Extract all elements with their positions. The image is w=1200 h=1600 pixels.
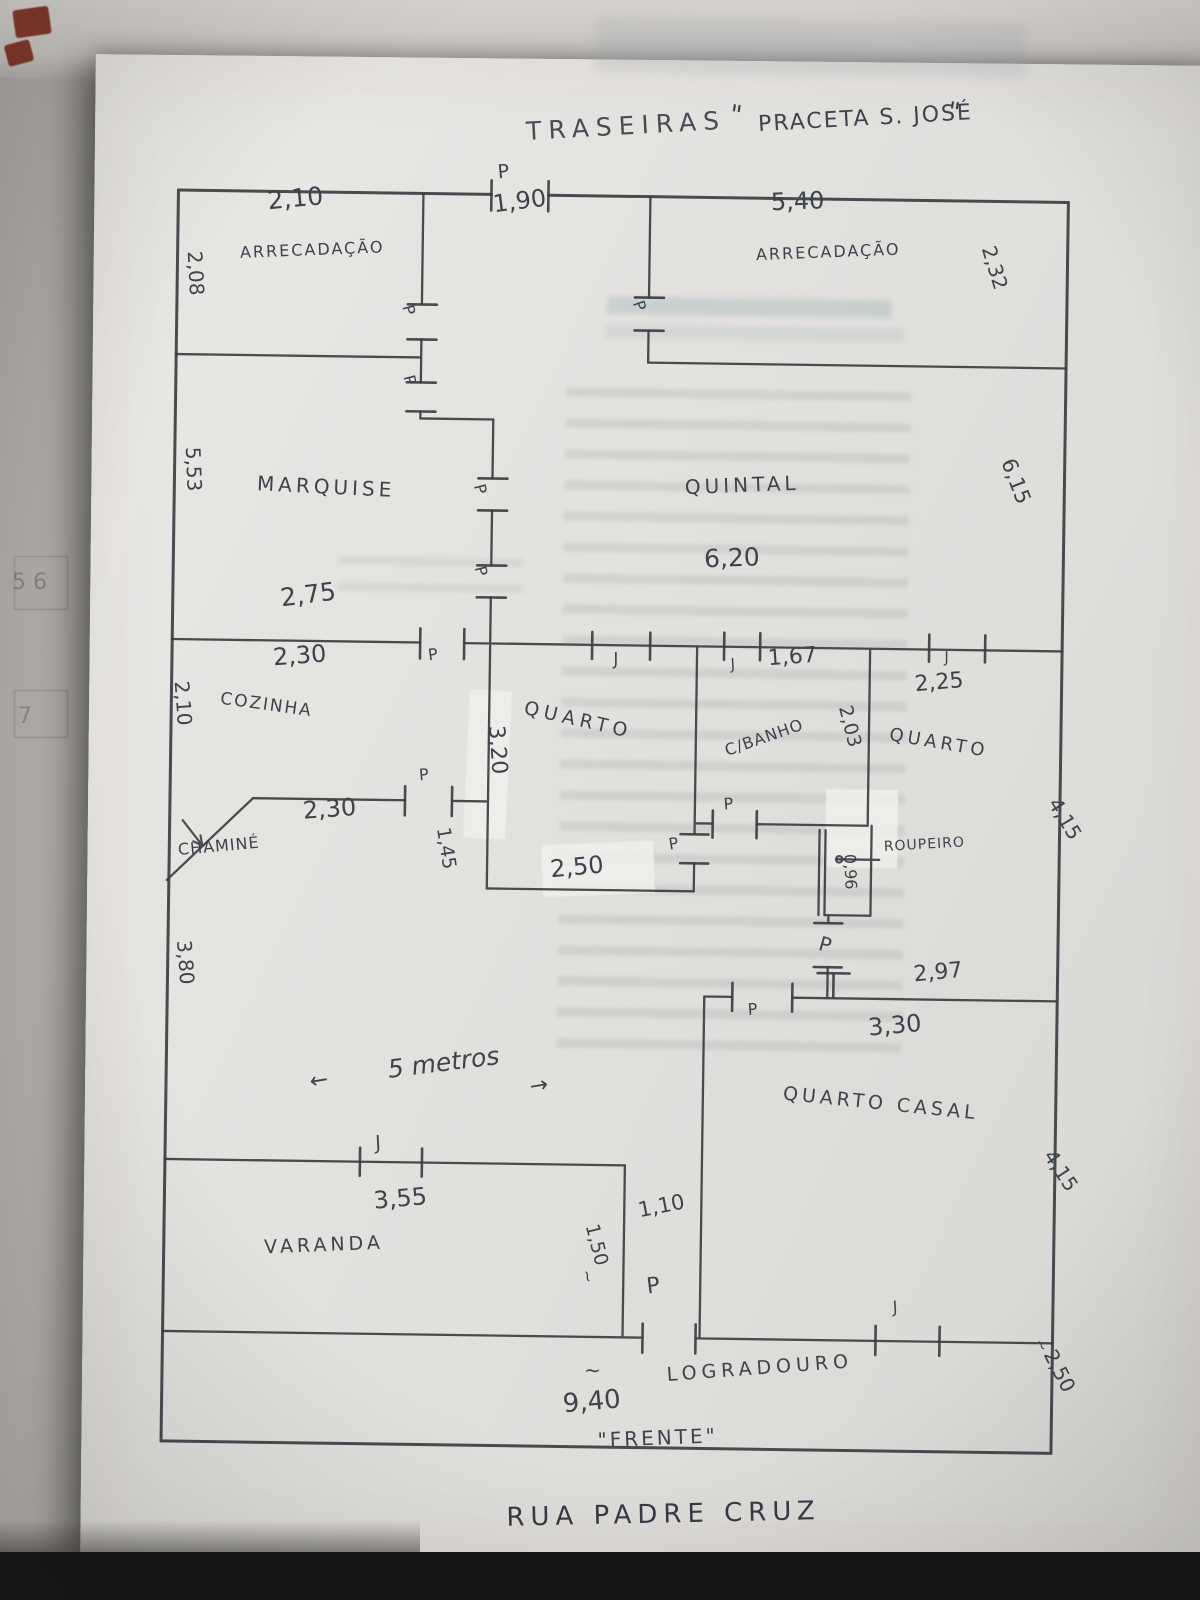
annotation-praceta: PRACETA S. JOSÉ xyxy=(758,102,974,136)
window-label-quarto-center: J xyxy=(612,651,620,669)
dim-corridor-width: 1,10 xyxy=(636,1191,686,1221)
door-label-casal: P xyxy=(747,1001,758,1018)
window-label-varanda: J xyxy=(373,1133,383,1153)
room-marquise: MARQUISE xyxy=(257,473,396,500)
room-chamine: CHAMINÉ xyxy=(177,835,260,858)
room-banho: C/BANHO xyxy=(723,717,806,759)
room-quarto-right: QUARTO xyxy=(888,726,990,761)
dim-quintal-depth: 6,15 xyxy=(997,456,1033,507)
dim-marquise-depth: 5,53 xyxy=(183,446,205,491)
dim-front-width: 9,40 xyxy=(562,1386,622,1417)
door-label-cozinha: P xyxy=(418,767,429,784)
dim-cozinha-depth: 2,10 xyxy=(172,680,195,726)
door-label-corridor-exit: P xyxy=(645,1275,661,1298)
dim-quarto-center-width: 2,50 xyxy=(549,852,604,881)
dim-casal-width: 3,30 xyxy=(867,1011,922,1040)
street-rua-padre-cruz: RUA PADRE CRUZ xyxy=(506,1498,821,1531)
annotation-traseiras: TRASEIRAS xyxy=(526,108,727,144)
door-label-top-entrance: P xyxy=(497,162,510,182)
dim-logradouro-depth: 2,50 xyxy=(1041,1346,1079,1395)
dim-hall-width: 1,45 xyxy=(433,826,459,871)
room-quarto-casal: QUARTO CASAL xyxy=(782,1085,979,1124)
dim-quarto-right-width: 2,25 xyxy=(914,670,965,696)
dim-quarto-right-depth: 4,15 xyxy=(1045,794,1085,842)
room-quarto-center: QUARTO xyxy=(522,699,634,742)
dim-front-approx: ~ xyxy=(584,1360,601,1380)
annotation-5-metros: 5 metros xyxy=(386,1043,500,1082)
room-varanda: VARANDA xyxy=(264,1234,384,1258)
dim-arrecadacao-right-width: 5,40 xyxy=(771,188,825,214)
dark-table-edge xyxy=(0,1552,1200,1600)
window-label-quarto-right: J xyxy=(943,650,950,666)
photo-of-floor-plan: 5 67 xyxy=(0,0,1200,1600)
door-label-corridor-upper: P xyxy=(471,482,489,495)
dim-marquise-width: 2,75 xyxy=(279,579,337,611)
annotation-praceta-quote-open: " xyxy=(728,102,744,130)
room-cozinha: COZINHA xyxy=(219,691,313,720)
dim-top-entrance: 1,90 xyxy=(491,186,547,217)
floor-plan: TRASEIRAS"PRACETA S. JOSÉ"P1,902,10ARREC… xyxy=(0,0,1200,1600)
dim-casal-north: 2,97 xyxy=(913,960,964,986)
dim-arrecadacao-left-width: 2,10 xyxy=(267,183,325,213)
dim-casal-depth: 4,15 xyxy=(1040,1146,1081,1194)
annotation-frente: "FRENTE" xyxy=(597,1425,718,1450)
door-label-corridor-lower: P xyxy=(472,564,490,577)
dim-sala-depth: 3,80 xyxy=(174,939,197,985)
window-label-banho: J xyxy=(729,657,737,673)
dim-quarto-center-depth: 3,20 xyxy=(484,725,510,775)
dim-quintal-width: 6,20 xyxy=(704,544,761,571)
dim-varanda-width: 3,55 xyxy=(373,1184,428,1213)
annotation-arrow-left: ← xyxy=(308,1069,330,1094)
room-quintal: QUINTAL xyxy=(685,473,800,497)
door-label-quintal-west: P xyxy=(630,299,648,313)
dim-roupeiro: 0,96 xyxy=(841,854,858,890)
room-arrecadacao-right: ARRECADAÇÃO xyxy=(756,242,901,264)
door-label-quarto-center: P xyxy=(667,835,679,852)
dim-banho-width: 1,67 xyxy=(767,645,817,671)
door-label-main-wall: P xyxy=(427,646,439,663)
dim-banho-depth: 2,03 xyxy=(835,704,864,750)
labels-layer: TRASEIRAS"PRACETA S. JOSÉ"P1,902,10ARREC… xyxy=(0,0,1200,1600)
room-roupeiro: ROUPEIRO xyxy=(883,835,965,854)
door-label-banho: P xyxy=(723,796,734,813)
room-arrecadacao-left: ARRECADAÇÃO xyxy=(240,239,385,261)
dim-corridor-depth: 1,50 xyxy=(582,1222,611,1268)
annotation-arrow-right: → xyxy=(528,1074,550,1099)
window-label-casal: J xyxy=(891,1299,899,1316)
door-label-marquise-upper: P xyxy=(399,303,417,316)
dim-arrecadacao-right-depth: 2,32 xyxy=(979,244,1011,292)
room-logradouro: LOGRADOURO xyxy=(666,1352,854,1385)
door-label-quarto-right: P xyxy=(817,933,834,956)
door-label-marquise-lower: P xyxy=(400,373,418,386)
dim-arrecadacao-left-depth: 2,08 xyxy=(185,250,207,296)
dim-cozinha-width: 2,30 xyxy=(272,641,327,669)
dim-corridor-depth-approx: ~ xyxy=(578,1268,597,1285)
dim-sala-north: 2,30 xyxy=(302,795,357,823)
